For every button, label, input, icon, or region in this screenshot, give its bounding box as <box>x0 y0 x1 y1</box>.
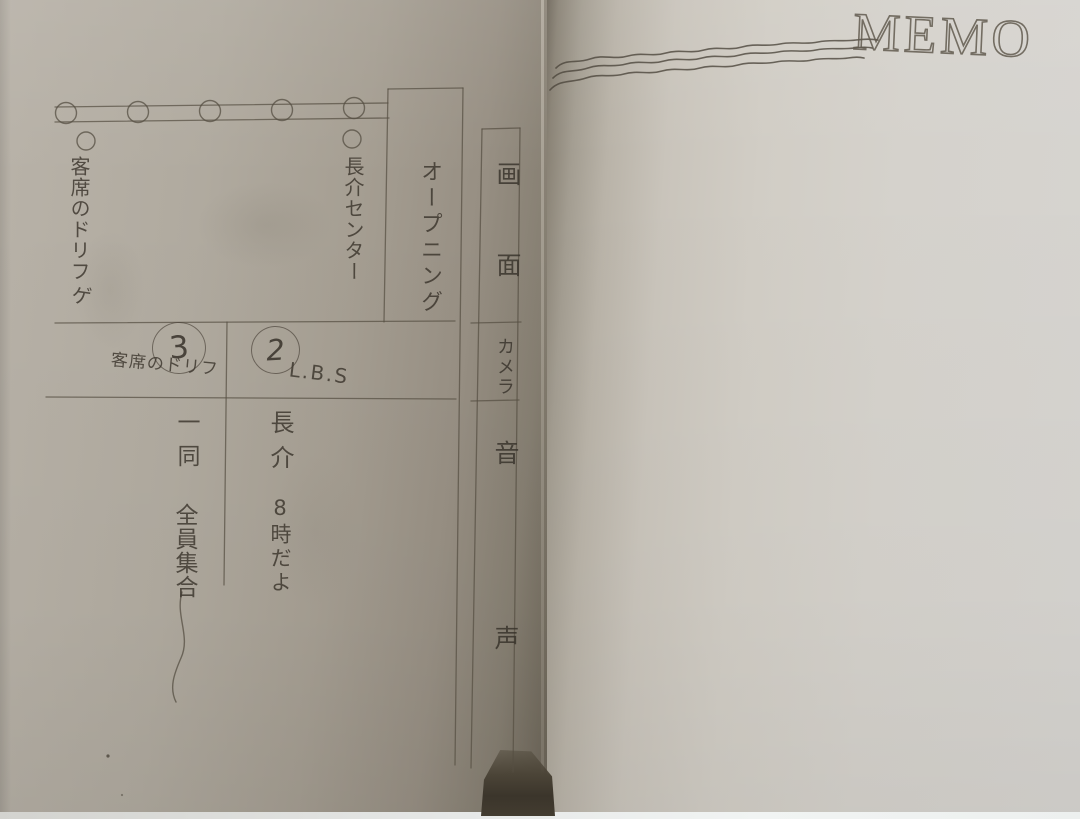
column-header-screen: 画面 <box>489 161 525 321</box>
dialogue-text-all: 全員集合 <box>167 503 201 613</box>
cue-number-2-value: 2 <box>265 333 285 368</box>
stage-bar-bottom-line <box>55 118 389 122</box>
pencil-strokes <box>0 0 1080 819</box>
stage-note-audience-suffix: ゲ <box>70 279 95 311</box>
notebook-photo: 客席のドリフ ゲ 長介センター オープニング 画面 カメラ 音声 3 客席のドリ… <box>0 0 1080 819</box>
dialogue-speaker-chosuke: 長介 <box>263 410 298 490</box>
pencil-dots <box>106 754 123 796</box>
stage-bar-top-line <box>55 103 388 107</box>
stage-note-center: 長介センター <box>339 156 368 336</box>
column-header-audio: 音声 <box>487 440 523 670</box>
memo-wavy-rules <box>550 39 878 90</box>
dialogue-text-chosuke: 8時だよ <box>265 496 295 616</box>
center-position-circle <box>343 130 361 148</box>
audience-position-circle <box>77 132 95 150</box>
dialogue-speaker-all: 一同 <box>169 410 203 480</box>
column-header-camera: カメラ <box>491 337 517 407</box>
scene-title-opening: オープニング <box>413 160 445 340</box>
memo-title: MEMO <box>852 2 1035 70</box>
